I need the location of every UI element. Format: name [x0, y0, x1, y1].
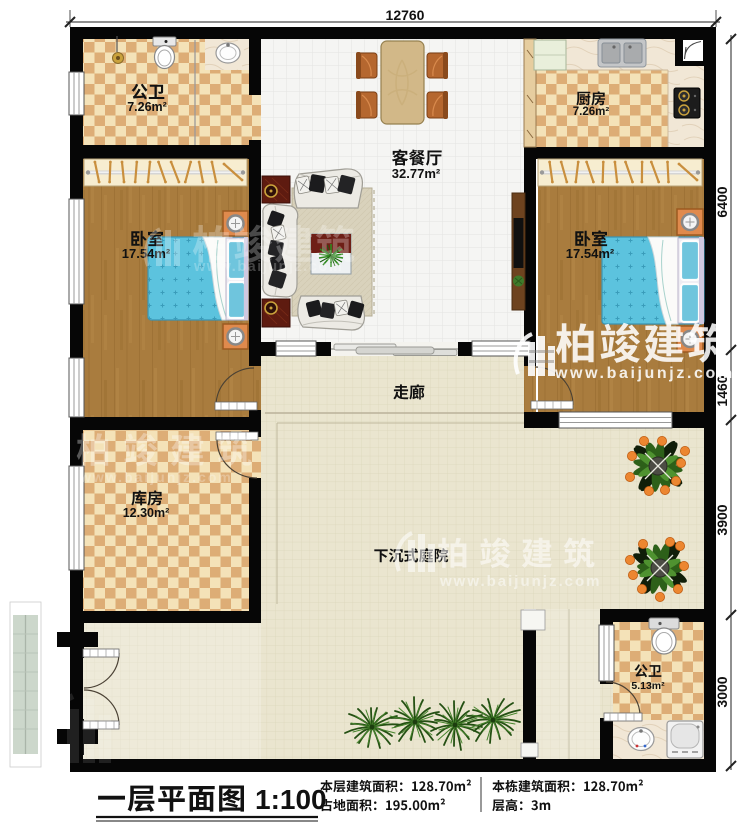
svg-text:www.baijunjz.com: www.baijunjz.com: [554, 365, 735, 382]
svg-text:5.13m²: 5.13m²: [631, 680, 665, 692]
svg-text:32.77m²: 32.77m²: [392, 166, 441, 181]
svg-text:3900: 3900: [714, 504, 730, 535]
svg-text:www.baijunjz.com: www.baijunjz.com: [193, 259, 343, 275]
svg-text:6400: 6400: [714, 186, 730, 217]
svg-text:www.baijunjz.com: www.baijunjz.com: [79, 469, 233, 485]
svg-text:7.26m²: 7.26m²: [127, 100, 167, 114]
svg-text:17.54m²: 17.54m²: [566, 246, 615, 261]
svg-text:12.30m²: 12.30m²: [123, 506, 170, 520]
svg-text:3000: 3000: [714, 676, 730, 707]
svg-text:www.baijunjz.com: www.baijunjz.com: [439, 573, 601, 590]
svg-text:1:100: 1:100: [255, 784, 327, 815]
svg-text:12760: 12760: [386, 7, 425, 23]
svg-text:7.26m²: 7.26m²: [573, 106, 610, 118]
